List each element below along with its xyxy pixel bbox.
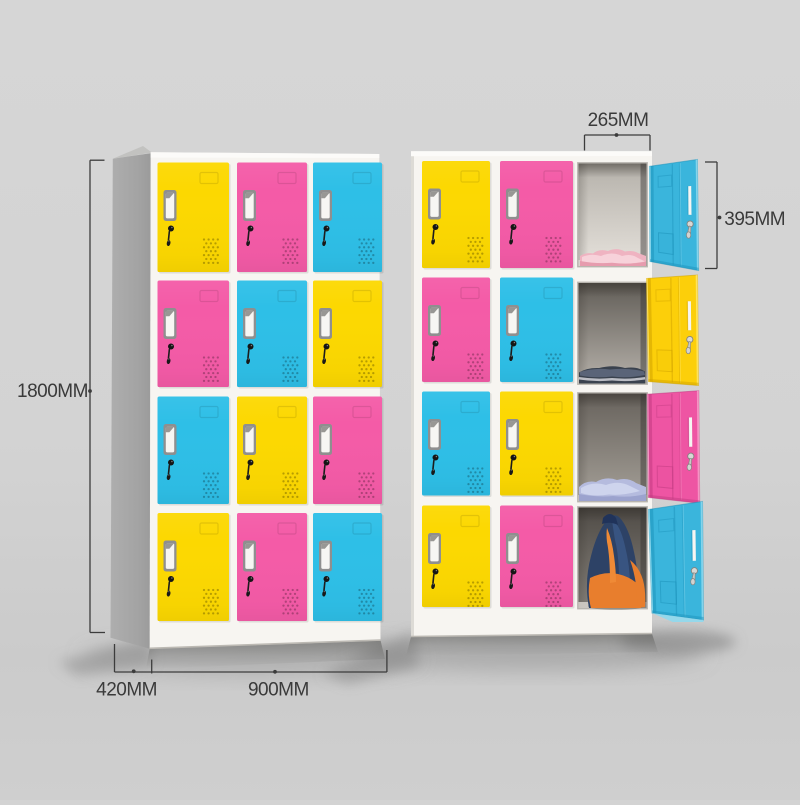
svg-text:1800MM: 1800MM — [17, 381, 88, 402]
svg-text:265MM: 265MM — [588, 110, 649, 131]
svg-text:900MM: 900MM — [248, 680, 309, 701]
svg-text:420MM: 420MM — [96, 680, 157, 701]
svg-text:395MM: 395MM — [724, 209, 785, 230]
